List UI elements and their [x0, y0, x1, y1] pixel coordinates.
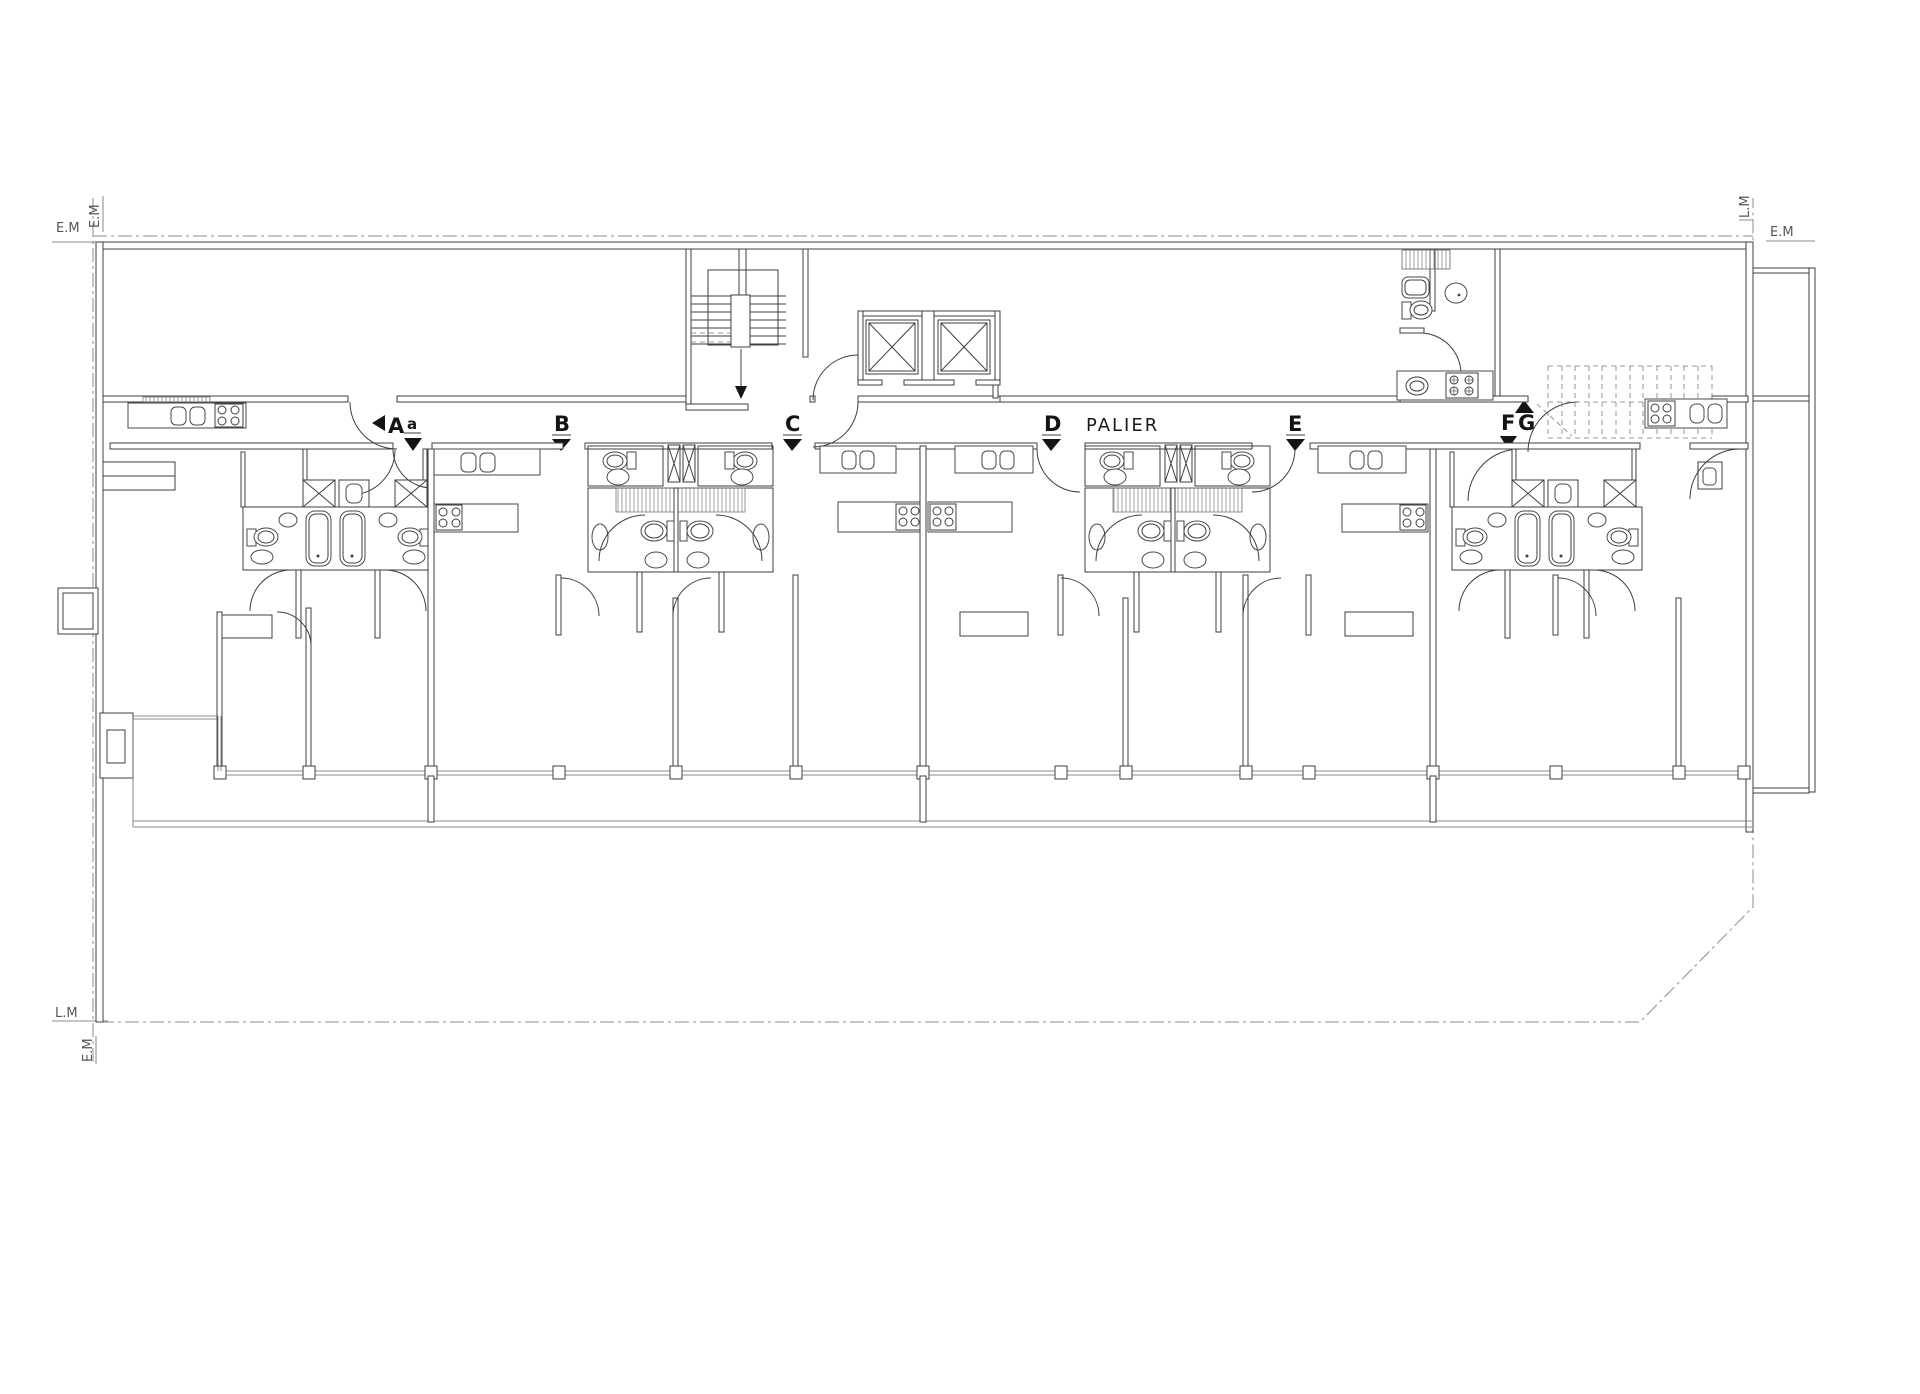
staircase [686, 249, 808, 410]
corridor-label: PALIER [1086, 415, 1159, 436]
washbasin-icon [379, 513, 397, 527]
door-swing-arc [1061, 578, 1099, 616]
bidet-icon [1460, 550, 1482, 564]
bathroom-cluster-3 [1085, 445, 1270, 632]
door-swing-arc [1420, 333, 1461, 374]
washbasin-icon [346, 484, 362, 503]
toilet-icon [1456, 528, 1487, 546]
door-swing-arc [561, 578, 599, 616]
door-swing-arc [1459, 570, 1635, 611]
washbasin-icon [1555, 484, 1571, 503]
balcony-railing [133, 719, 1752, 827]
bidet-icon [403, 550, 425, 564]
door-swing-arc [813, 402, 858, 447]
label-em-top-left: E.M [56, 221, 80, 236]
marker-F: F [1501, 411, 1515, 435]
door-swing-arc [250, 570, 426, 611]
washbasin-icon [1104, 469, 1126, 485]
bidet-icon [1142, 552, 1164, 568]
washbasin-icon [1703, 468, 1716, 485]
wardrobe [222, 615, 272, 638]
kitchen-sink-icon [190, 407, 205, 425]
kitchen-sink-icon [860, 451, 874, 469]
washbasin-icon [279, 513, 297, 527]
washbasin-icon [1445, 283, 1467, 303]
marker-A: A [388, 414, 405, 438]
kitchen-counters [434, 502, 1428, 532]
planter-box [100, 713, 133, 778]
stair-direction-arrow-icon [735, 386, 747, 399]
marker-C: C [785, 412, 800, 436]
marker-a-down-arrow-icon [404, 438, 422, 451]
marker-e-down-arrow-icon [1286, 439, 1305, 451]
kitchen-sink-icon [1708, 404, 1722, 423]
door-swing-arc [673, 578, 711, 616]
washbasin-icon [1488, 513, 1506, 527]
kitchen-sink-icon [982, 451, 996, 469]
planter-box [58, 588, 98, 634]
toilet-icon [725, 452, 757, 470]
toilet-icon [1607, 528, 1638, 546]
kitchen-sink-icon [1350, 451, 1364, 469]
label-em-top-left-vertical: E.M [88, 204, 103, 228]
kitchen-sink-icon [480, 453, 495, 472]
wardrobe [960, 612, 1028, 636]
wardrobe [1345, 612, 1413, 636]
toilet-icon [680, 521, 713, 541]
apartment-sink-counters [430, 446, 1406, 475]
elevator-x-cab-icon [938, 320, 990, 374]
kitchen-sink-icon [842, 451, 856, 469]
bidet-icon [645, 552, 667, 568]
toilet-icon [1177, 521, 1210, 541]
floor-plan-drawing: E.M E.M E.M L.M L.M E.M A a B C D E F G … [0, 0, 1920, 1394]
elevator-block [858, 311, 1000, 398]
washbasin-icon [1228, 469, 1250, 485]
bathtub-icon [306, 511, 331, 566]
door-swing-arc [1037, 449, 1080, 492]
toilet-icon [398, 528, 429, 546]
washbasin-icon [1588, 513, 1606, 527]
toilet-icon [1222, 452, 1254, 470]
bathtub-icon [1549, 511, 1574, 566]
marker-a-left-arrow-icon [372, 415, 385, 431]
marker-d-down-arrow-icon [1042, 439, 1061, 451]
toilet-icon [641, 521, 674, 541]
kitchen-sink-icon [461, 453, 476, 472]
marker-B: B [554, 412, 570, 436]
bathtub-icon [1515, 511, 1540, 566]
label-em-bottom-left-vertical: E.M [81, 1038, 96, 1062]
label-em-top-right: E.M [1770, 225, 1794, 240]
kitchen-sink-icon [1000, 451, 1014, 469]
kitchen-sink-icon [1690, 404, 1704, 423]
marker-D: D [1044, 412, 1061, 436]
washbasin-icon [607, 469, 629, 485]
kitchen-sink-icon [1368, 451, 1382, 469]
kitchen-sink-icon [171, 407, 186, 425]
door-swing-arc [1558, 578, 1596, 616]
label-lm-top-right-vertical: L.M [1738, 195, 1753, 218]
toilet-icon [1402, 301, 1432, 319]
door-swing-arc [1243, 578, 1281, 616]
bathroom-cluster-4 [1452, 449, 1642, 638]
bathroom-cluster-2 [588, 445, 773, 632]
apartment-partitions [217, 446, 1681, 772]
top-right-bathroom [1397, 249, 1500, 400]
corridor-right-counter [1645, 399, 1727, 428]
marker-a: a [407, 415, 417, 433]
toilet-icon [247, 528, 278, 546]
door-swing-arc [813, 355, 858, 400]
elevator-x-cab-icon [866, 320, 918, 374]
toilet-icon [1138, 521, 1171, 541]
label-lm-bottom-left: L.M [55, 1006, 78, 1021]
bidet-icon [1612, 550, 1634, 564]
toilet-icon [603, 452, 636, 470]
toilet-icon [1100, 452, 1133, 470]
bidet-icon [687, 552, 709, 568]
washbasin-icon [731, 469, 753, 485]
marker-E: E [1288, 412, 1302, 436]
floor-plan-page: E.M E.M E.M L.M L.M E.M A a B C D E F G … [0, 0, 1920, 1394]
bidet-icon [251, 550, 273, 564]
bidet-icon [1184, 552, 1206, 568]
bathtub-icon [340, 511, 365, 566]
marker-c-down-arrow-icon [783, 439, 802, 451]
